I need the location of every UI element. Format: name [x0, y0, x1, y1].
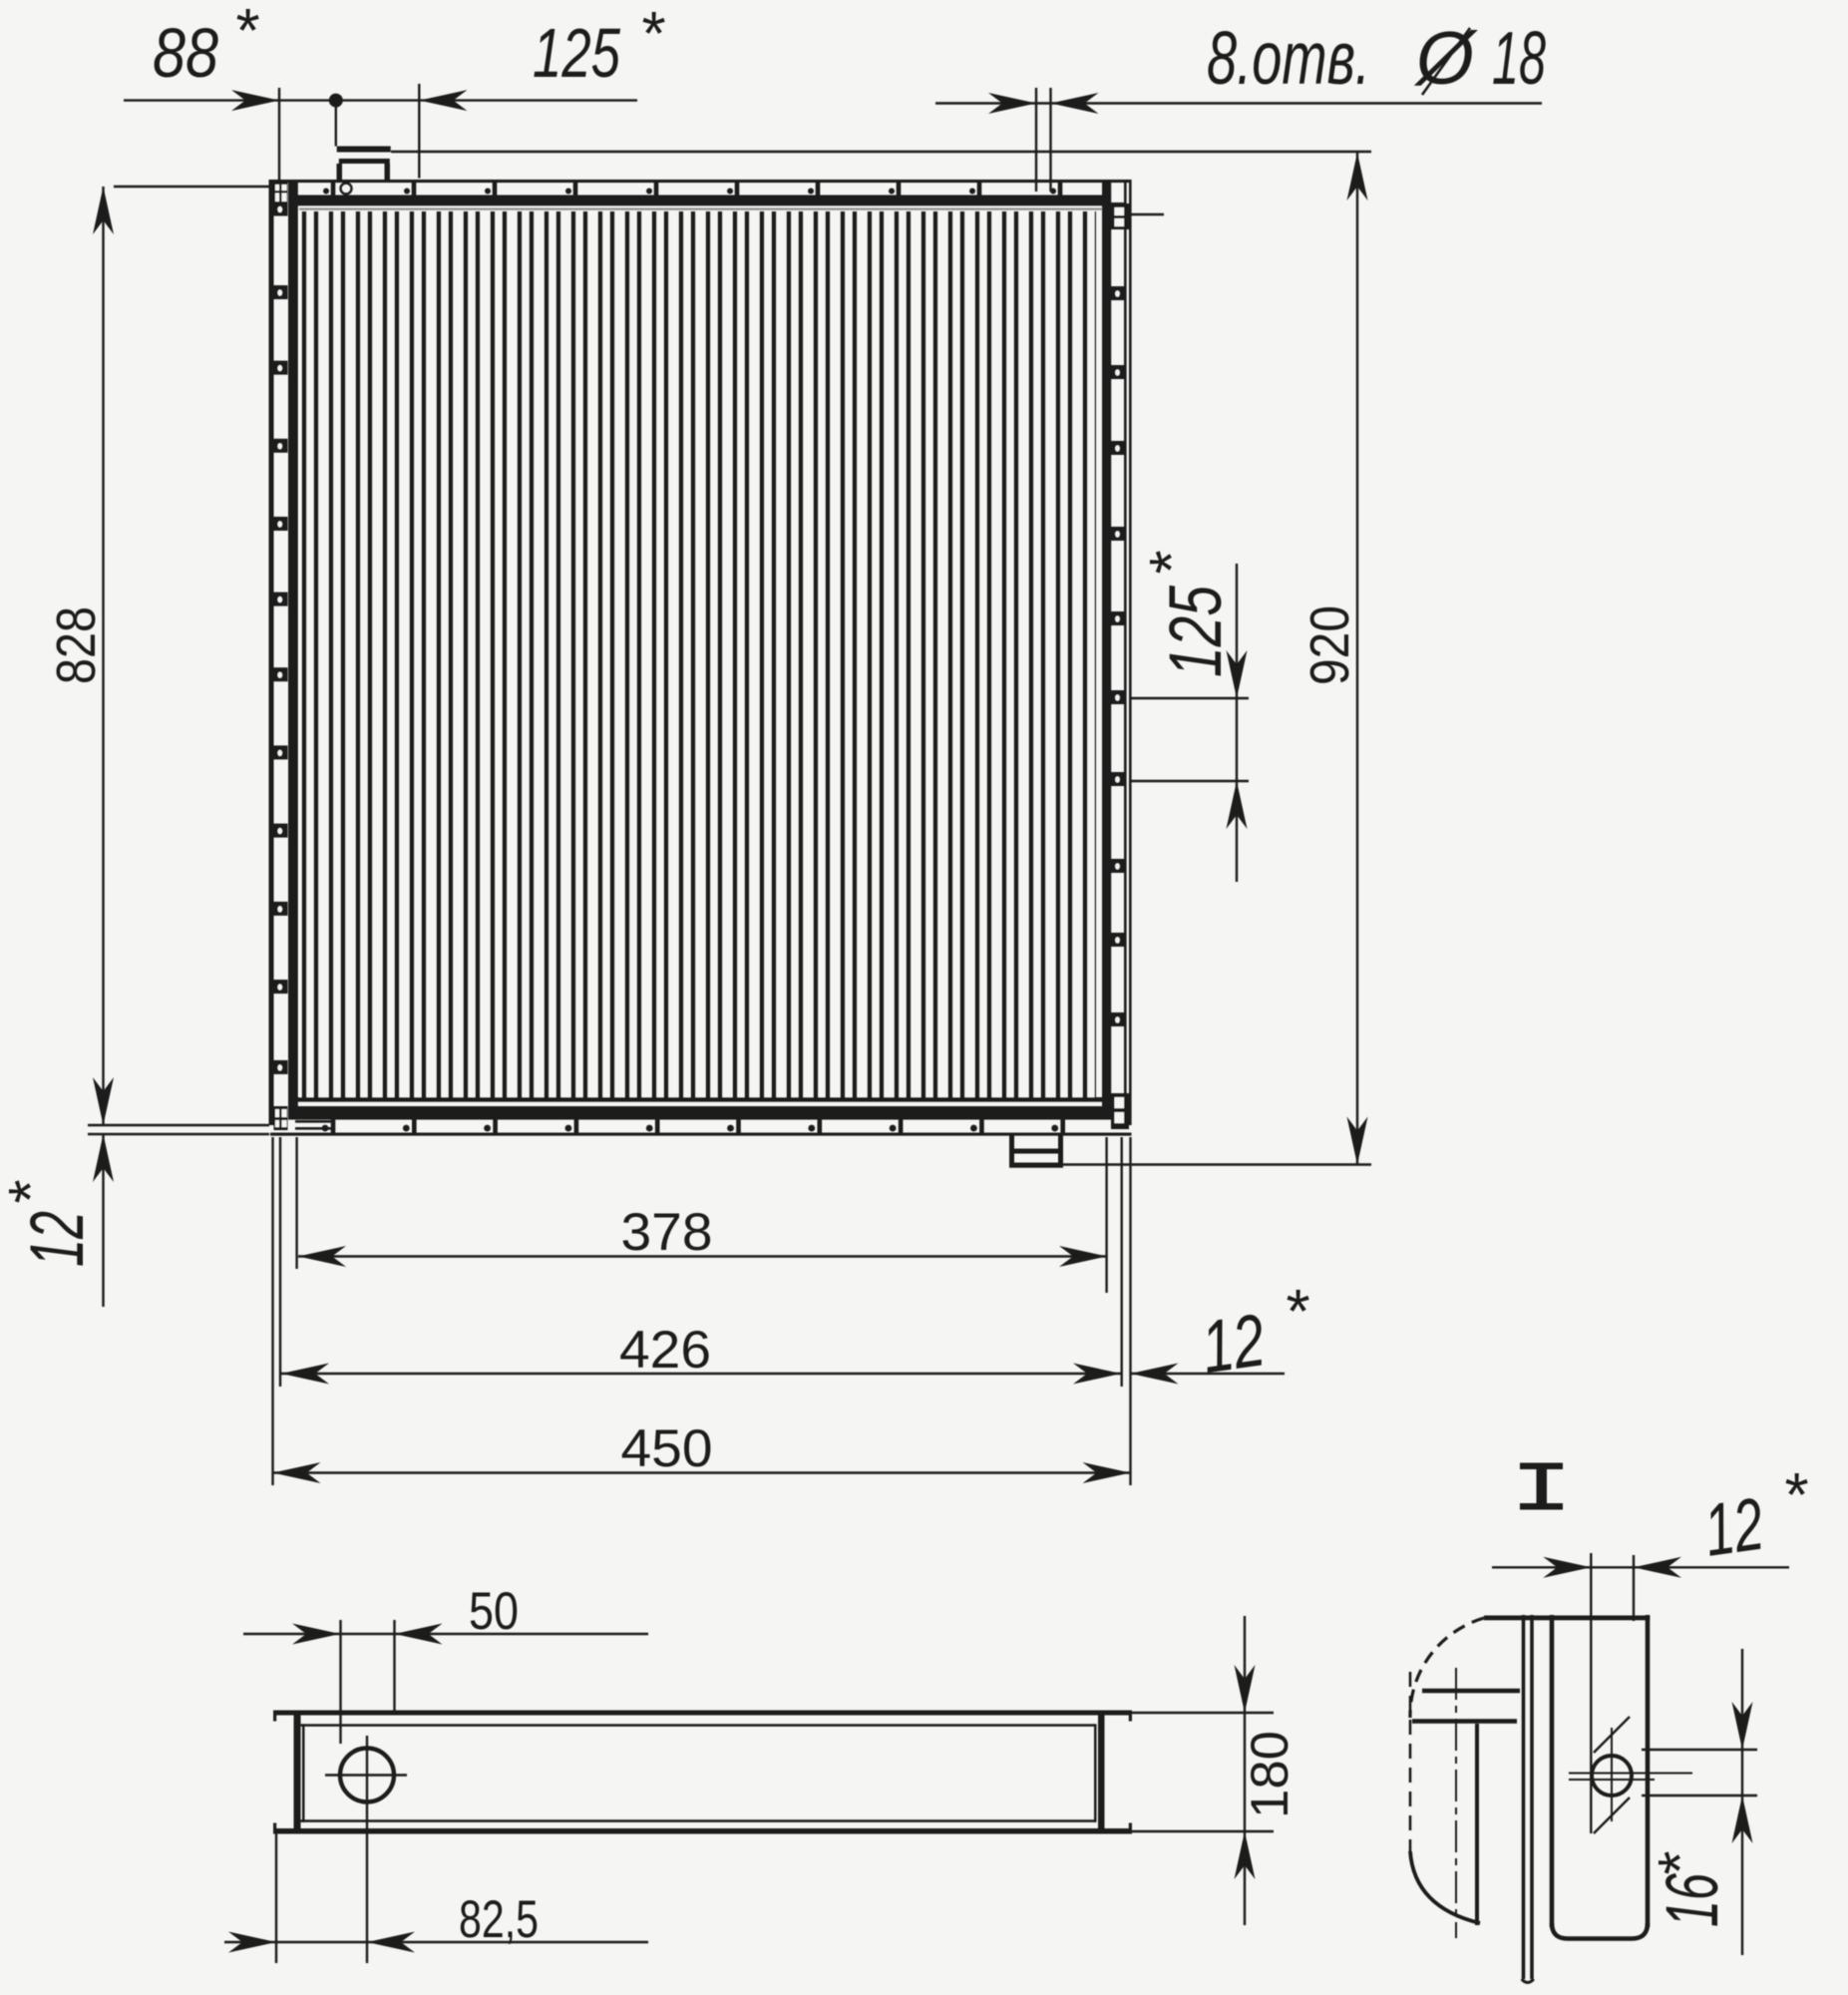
svg-text:8.отв.: 8.отв.	[1207, 16, 1370, 100]
svg-text:378: 378	[621, 1203, 713, 1262]
svg-text:125: 125	[533, 14, 621, 92]
svg-text:125: 125	[1154, 585, 1237, 677]
svg-text:*: *	[233, 0, 259, 66]
svg-text:12: 12	[1699, 1482, 1768, 1572]
svg-text:*: *	[1138, 551, 1207, 577]
svg-text:88: 88	[153, 14, 218, 92]
svg-text:828: 828	[45, 606, 107, 684]
svg-text:180: 180	[1241, 1731, 1299, 1818]
svg-text:16: 16	[1651, 1872, 1733, 1927]
svg-text:920: 920	[1298, 605, 1360, 685]
svg-text:*: *	[0, 1180, 66, 1206]
svg-text:*: *	[1647, 1851, 1715, 1877]
svg-text:*: *	[1782, 1461, 1808, 1530]
svg-text:82,5: 82,5	[459, 1890, 539, 1949]
svg-text:*: *	[1284, 1278, 1309, 1347]
svg-text:450: 450	[621, 1419, 713, 1478]
svg-text:*: *	[639, 0, 665, 69]
svg-text:50: 50	[469, 1582, 519, 1641]
svg-text:18: 18	[1492, 16, 1546, 100]
svg-text:12: 12	[15, 1211, 100, 1267]
svg-text:426: 426	[619, 1321, 711, 1380]
svg-text:12: 12	[1197, 1298, 1270, 1389]
